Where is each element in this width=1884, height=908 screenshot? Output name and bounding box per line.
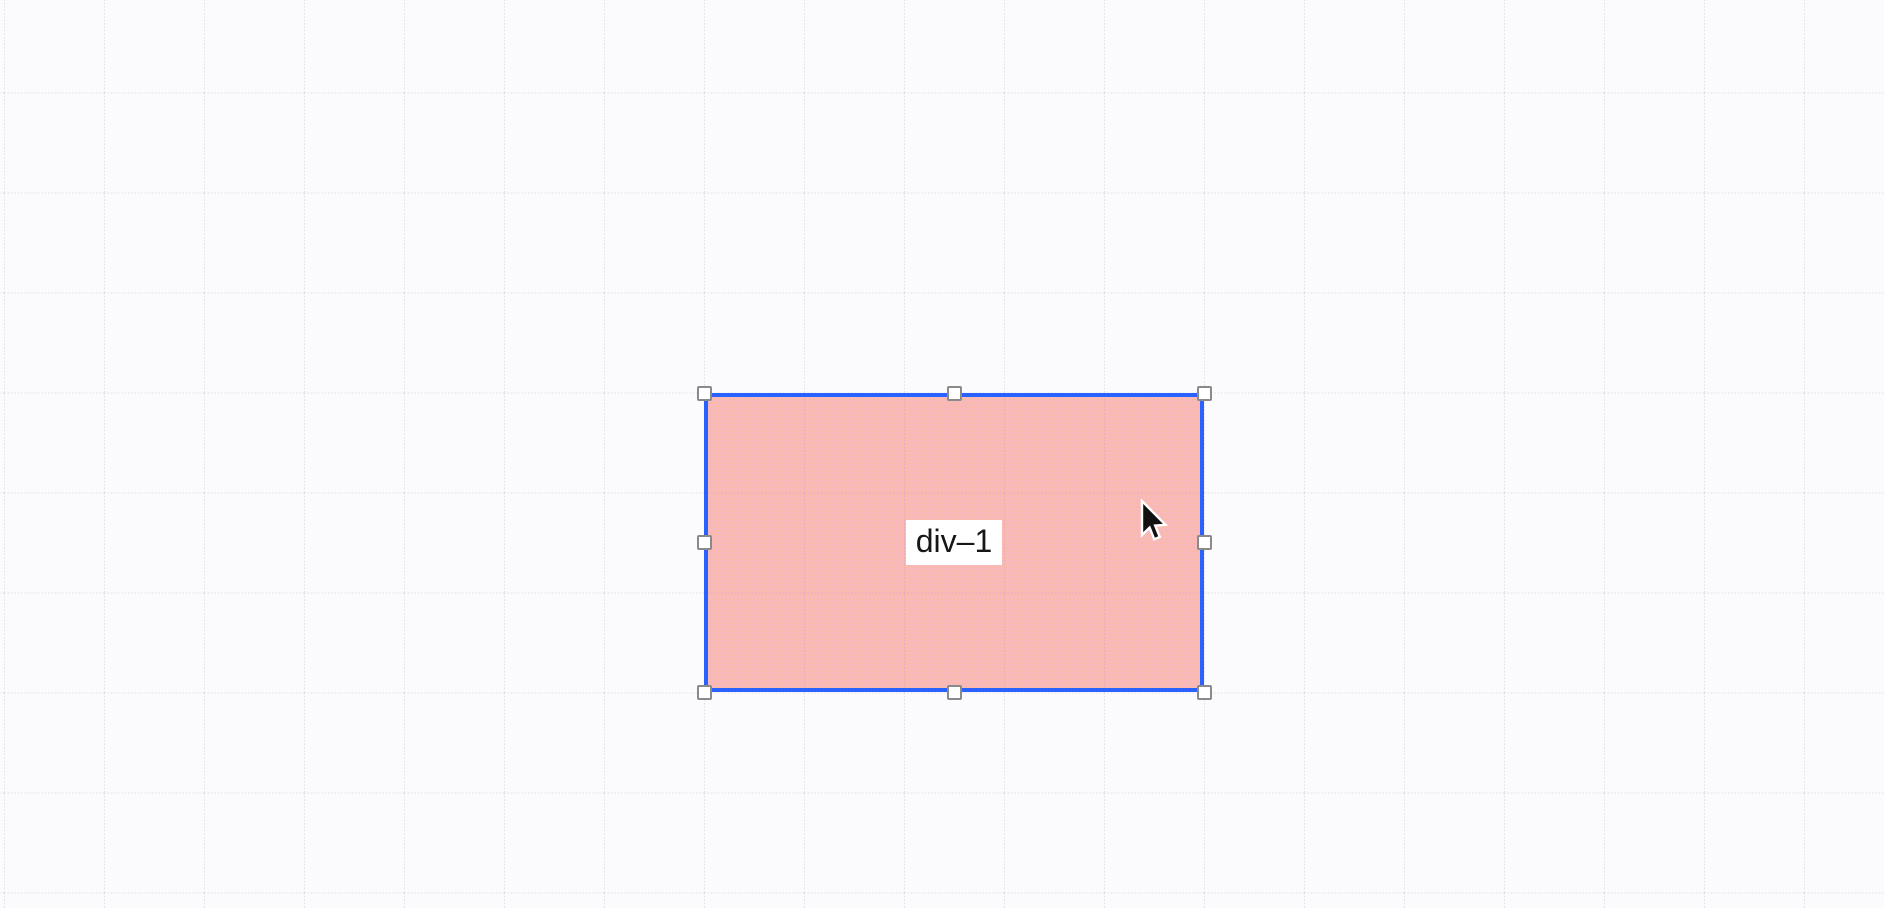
resize-handle-bottom[interactable] (947, 685, 962, 700)
resize-handle-top-right[interactable] (1197, 386, 1212, 401)
design-canvas[interactable]: div–1 (0, 0, 1884, 908)
resize-handle-left[interactable] (697, 535, 712, 550)
resize-handle-bottom-right[interactable] (1197, 685, 1212, 700)
selected-element-div-1[interactable]: div–1 (704, 393, 1204, 692)
resize-handle-right[interactable] (1197, 535, 1212, 550)
resize-handle-top[interactable] (947, 386, 962, 401)
element-label: div–1 (906, 520, 1003, 566)
resize-handle-top-left[interactable] (697, 386, 712, 401)
resize-handle-bottom-left[interactable] (697, 685, 712, 700)
